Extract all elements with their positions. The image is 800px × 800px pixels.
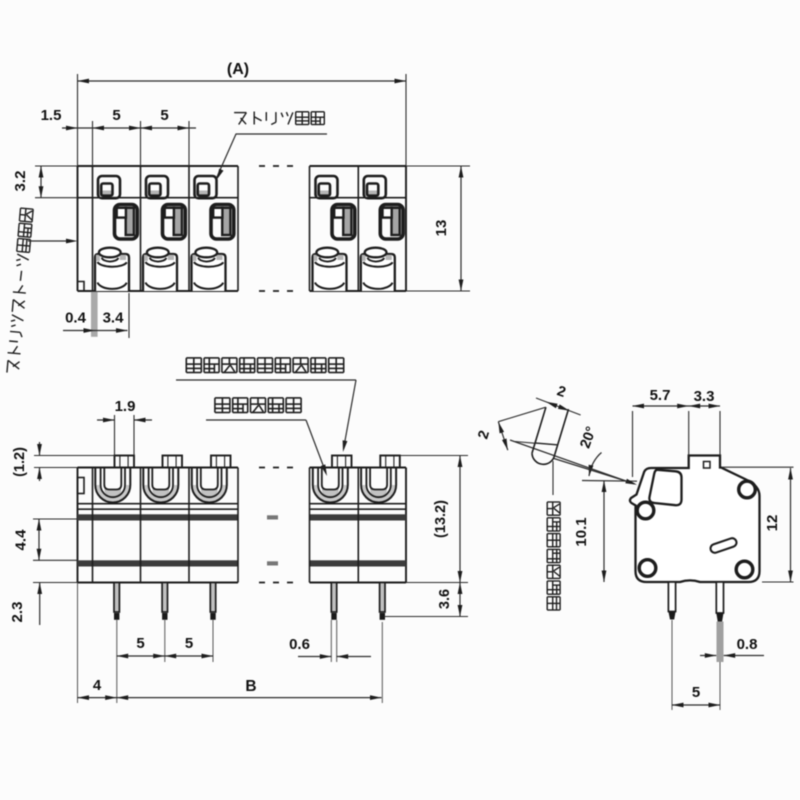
svg-text:3.4: 3.4 xyxy=(103,310,125,327)
svg-text:5: 5 xyxy=(160,107,168,124)
svg-text:12: 12 xyxy=(764,515,781,532)
svg-text:1.9: 1.9 xyxy=(115,398,136,415)
svg-text:10.1: 10.1 xyxy=(573,517,590,546)
svg-text:(13.2): (13.2) xyxy=(433,500,449,538)
svg-text:5: 5 xyxy=(692,684,700,701)
svg-text:3.2: 3.2 xyxy=(12,171,29,192)
svg-text:5: 5 xyxy=(136,635,144,652)
svg-text:3.6: 3.6 xyxy=(437,589,453,609)
svg-text:2.3: 2.3 xyxy=(9,602,26,623)
svg-text:0.6: 0.6 xyxy=(289,636,310,653)
svg-text:0.8: 0.8 xyxy=(737,636,758,653)
svg-text:B: B xyxy=(245,678,256,695)
svg-text:5: 5 xyxy=(112,107,120,124)
svg-text:(A): (A) xyxy=(227,61,249,78)
svg-text:5.7: 5.7 xyxy=(650,387,671,404)
svg-text:1.5: 1.5 xyxy=(41,107,62,124)
svg-text:0.4: 0.4 xyxy=(65,310,87,327)
svg-text:5: 5 xyxy=(185,635,193,652)
svg-text:13: 13 xyxy=(433,220,450,237)
svg-text:4: 4 xyxy=(93,677,102,694)
svg-text:(1.2): (1.2) xyxy=(12,447,28,477)
svg-text:4.4: 4.4 xyxy=(13,529,30,551)
svg-text:3.3: 3.3 xyxy=(694,388,715,405)
